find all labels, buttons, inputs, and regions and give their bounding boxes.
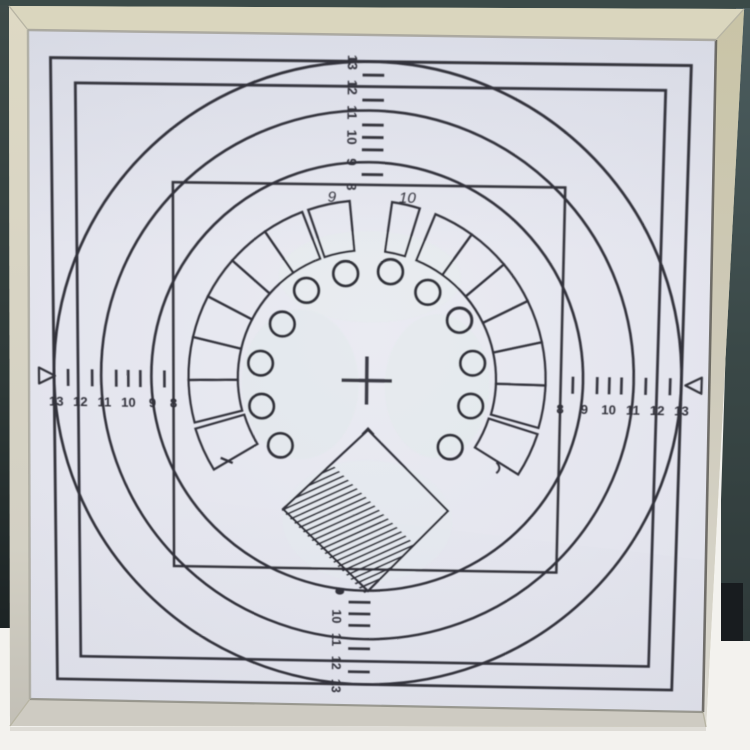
svg-text:13: 13 [49,394,64,409]
svg-text:13: 13 [329,679,343,694]
svg-text:10: 10 [399,190,417,207]
svg-text:8: 8 [170,396,178,411]
svg-text:9: 9 [149,396,156,410]
svg-text:10: 10 [344,130,359,145]
svg-text:11: 11 [626,403,641,418]
svg-text:12: 12 [650,403,665,418]
svg-text:8: 8 [556,402,564,417]
svg-text:10: 10 [601,403,616,418]
svg-text:9: 9 [344,158,359,166]
svg-text:9: 9 [328,189,337,206]
svg-text:10: 10 [329,609,343,623]
svg-text:11: 11 [329,633,343,647]
svg-text:13: 13 [345,55,360,71]
svg-text:10: 10 [121,395,136,410]
svg-text:9: 9 [581,402,589,417]
svg-text:13: 13 [674,404,690,419]
svg-text:8: 8 [344,183,359,191]
svg-text:12: 12 [73,394,88,409]
svg-text:12: 12 [329,656,343,670]
svg-text:11: 11 [344,105,359,120]
svg-text:12: 12 [345,80,360,95]
svg-text:11: 11 [97,395,111,410]
